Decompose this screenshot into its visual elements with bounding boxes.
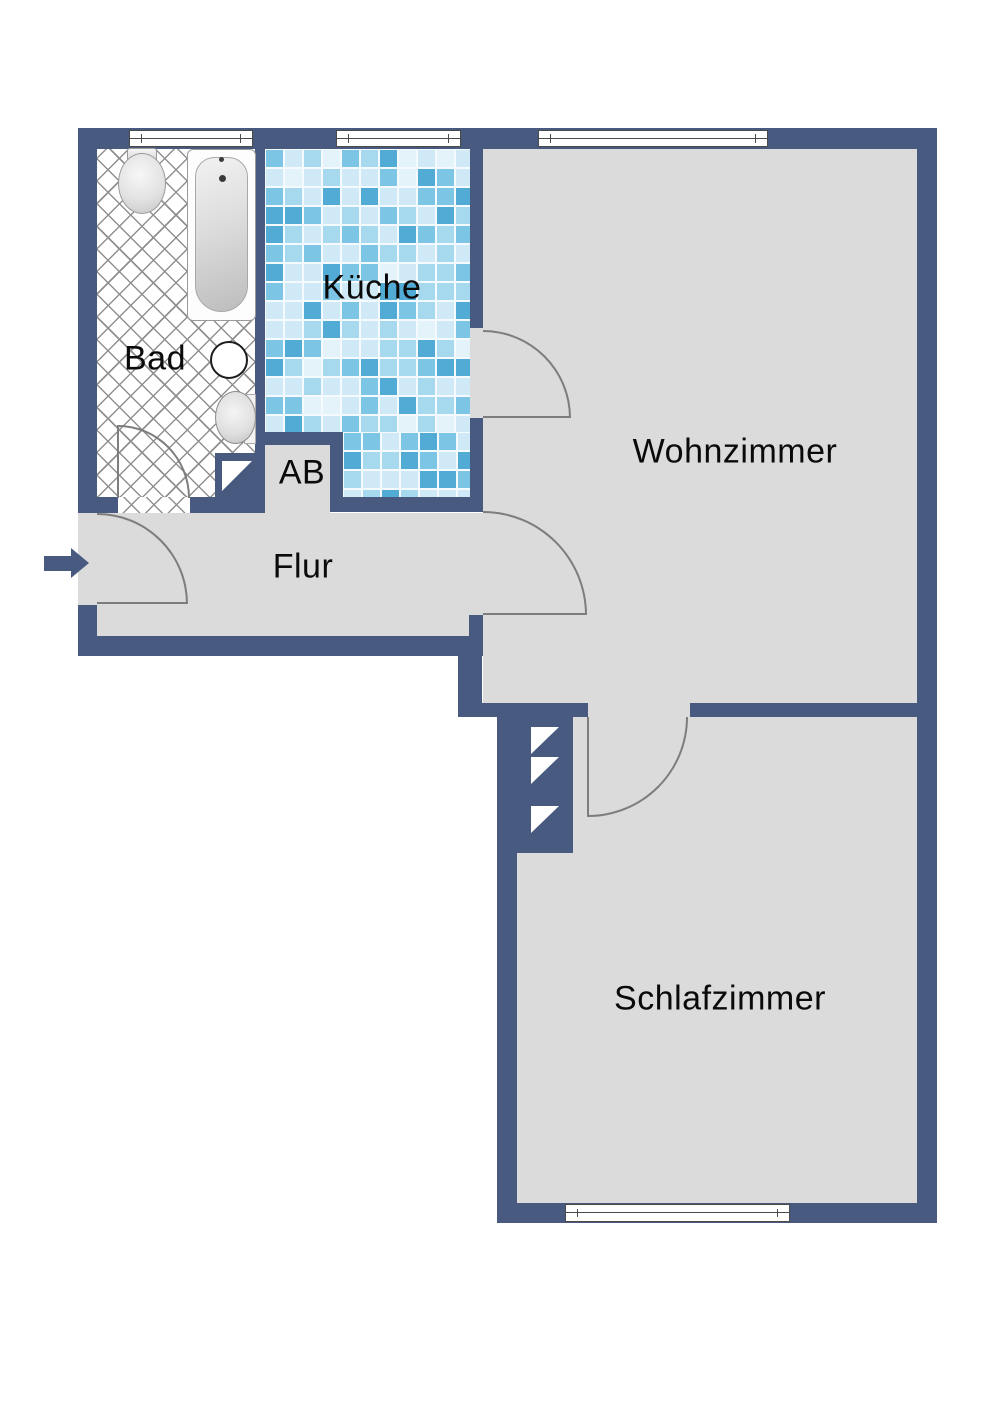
mosaic-tile bbox=[382, 452, 399, 469]
mosaic-tile bbox=[266, 245, 283, 262]
mosaic-tile bbox=[363, 490, 380, 497]
mosaic-tile bbox=[456, 264, 470, 281]
mosaic-tile bbox=[437, 302, 454, 319]
mosaic-tile bbox=[382, 490, 399, 497]
mosaic-tile bbox=[456, 245, 470, 262]
mosaic-tile bbox=[344, 433, 361, 450]
wall-kueche-wohnzimmer-upper bbox=[470, 149, 483, 328]
round-basin-icon bbox=[210, 341, 248, 379]
mosaic-tile bbox=[458, 490, 470, 497]
bad-window bbox=[129, 130, 253, 147]
mosaic-tile bbox=[266, 359, 283, 376]
mosaic-tile bbox=[285, 245, 302, 262]
mosaic-tile bbox=[323, 378, 340, 395]
mosaic-tile bbox=[437, 207, 454, 224]
mosaic-tile bbox=[418, 207, 435, 224]
mosaic-tile bbox=[437, 264, 454, 281]
mosaic-tile bbox=[399, 397, 416, 414]
mosaic-tile bbox=[323, 169, 340, 186]
mosaic-tile bbox=[344, 490, 361, 497]
entrance-arrow-icon bbox=[44, 556, 72, 571]
mosaic-tile bbox=[361, 245, 378, 262]
schlafzimmer-label: Schlafzimmer bbox=[614, 980, 826, 1019]
mosaic-tile bbox=[304, 207, 321, 224]
window-glazing-line bbox=[130, 138, 252, 139]
bad-door-leaf bbox=[117, 425, 119, 498]
mosaic-tile bbox=[456, 226, 470, 243]
bathtub-faucet-icon bbox=[219, 157, 224, 162]
mosaic-tile bbox=[401, 452, 418, 469]
mosaic-tile bbox=[304, 169, 321, 186]
mosaic-tile bbox=[456, 302, 470, 319]
mosaic-tile bbox=[323, 188, 340, 205]
mosaic-tile bbox=[266, 283, 283, 300]
window-glazing-line bbox=[141, 134, 142, 142]
mosaic-tile bbox=[323, 397, 340, 414]
mosaic-tile bbox=[323, 207, 340, 224]
wall-bad-kueche-divider bbox=[255, 149, 265, 453]
wohnzimmer-window bbox=[538, 130, 768, 147]
mosaic-tile bbox=[456, 150, 470, 167]
mosaic-tile bbox=[458, 471, 470, 488]
wall-flur-bottom bbox=[78, 636, 483, 656]
mosaic-tile bbox=[399, 378, 416, 395]
mosaic-tile bbox=[361, 321, 378, 338]
mosaic-tile bbox=[342, 169, 359, 186]
mosaic-tile bbox=[439, 433, 456, 450]
bad-doorway-floor bbox=[118, 497, 190, 513]
mosaic-tile bbox=[323, 416, 340, 432]
mosaic-tile bbox=[266, 226, 283, 243]
mosaic-tile bbox=[361, 397, 378, 414]
ab-label: AB bbox=[279, 454, 325, 493]
entrance-arrow-head-icon bbox=[71, 548, 89, 578]
wall-kueche-wohnzimmer-lower bbox=[470, 418, 483, 512]
mosaic-tile bbox=[285, 169, 302, 186]
window-glazing-line bbox=[240, 134, 241, 142]
mosaic-tile bbox=[437, 359, 454, 376]
mosaic-tile bbox=[456, 359, 470, 376]
ab-duct-symbol-icon bbox=[222, 461, 252, 491]
mosaic-tile bbox=[380, 340, 397, 357]
mosaic-tile bbox=[323, 359, 340, 376]
kueche-window bbox=[336, 130, 461, 147]
mosaic-tile bbox=[361, 207, 378, 224]
mosaic-tile bbox=[342, 340, 359, 357]
mosaic-tile bbox=[344, 452, 361, 469]
mosaic-tile bbox=[363, 471, 380, 488]
mosaic-tile bbox=[380, 321, 397, 338]
mosaic-tile bbox=[285, 283, 302, 300]
mosaic-tile bbox=[399, 321, 416, 338]
mosaic-tile bbox=[399, 340, 416, 357]
wall-flur-east-stub bbox=[469, 615, 483, 637]
mosaic-tile bbox=[437, 169, 454, 186]
wall-right bbox=[917, 128, 937, 1223]
mosaic-tile bbox=[380, 245, 397, 262]
mosaic-tile bbox=[361, 169, 378, 186]
mosaic-tile bbox=[285, 340, 302, 357]
mosaic-tile bbox=[380, 169, 397, 186]
mosaic-tile bbox=[342, 359, 359, 376]
mosaic-tile bbox=[418, 321, 435, 338]
wall-schlafzimmer-left bbox=[497, 717, 517, 1223]
mosaic-tile bbox=[456, 416, 470, 432]
mosaic-tile bbox=[399, 416, 416, 432]
window-glazing-line bbox=[566, 1212, 789, 1213]
wall-bad-bottom-left bbox=[97, 497, 118, 513]
flur-door-leaf bbox=[483, 613, 587, 615]
mosaic-tile bbox=[285, 378, 302, 395]
mosaic-tile bbox=[456, 321, 470, 338]
window-glazing-line bbox=[337, 138, 460, 139]
wohnzimmer-floor bbox=[483, 149, 917, 703]
mosaic-tile bbox=[456, 340, 470, 357]
mosaic-tile bbox=[304, 150, 321, 167]
mosaic-tile bbox=[304, 397, 321, 414]
window-glazing-line bbox=[539, 138, 767, 139]
mosaic-tile bbox=[342, 207, 359, 224]
mosaic-tile bbox=[418, 226, 435, 243]
mosaic-tile bbox=[437, 188, 454, 205]
mosaic-tile bbox=[437, 340, 454, 357]
mosaic-tile bbox=[437, 397, 454, 414]
mosaic-tile bbox=[380, 226, 397, 243]
mosaic-tile bbox=[342, 150, 359, 167]
duct-triangle-icon bbox=[531, 727, 559, 754]
mosaic-tile bbox=[418, 378, 435, 395]
mosaic-tile bbox=[437, 283, 454, 300]
mosaic-tile bbox=[285, 302, 302, 319]
mosaic-tile bbox=[285, 416, 302, 432]
mosaic-tile bbox=[304, 359, 321, 376]
mosaic-tile bbox=[304, 264, 321, 281]
mosaic-tile bbox=[420, 490, 437, 497]
wall-ab-right bbox=[330, 445, 343, 512]
mosaic-tile bbox=[342, 188, 359, 205]
mosaic-tile bbox=[380, 207, 397, 224]
mosaic-tile bbox=[266, 321, 283, 338]
mosaic-tile bbox=[363, 452, 380, 469]
mosaic-tile bbox=[361, 226, 378, 243]
mosaic-tile bbox=[342, 321, 359, 338]
mosaic-tile bbox=[382, 433, 399, 450]
mosaic-tile bbox=[266, 378, 283, 395]
mosaic-tile bbox=[342, 397, 359, 414]
mosaic-tile bbox=[285, 150, 302, 167]
mosaic-tile bbox=[361, 378, 378, 395]
mosaic-tile bbox=[266, 416, 283, 432]
window-glazing-line bbox=[777, 1209, 778, 1218]
mosaic-tile bbox=[266, 150, 283, 167]
mosaic-tile bbox=[342, 378, 359, 395]
mosaic-tile bbox=[399, 188, 416, 205]
window-glazing-line bbox=[348, 134, 349, 142]
kueche-doorway-floor bbox=[470, 328, 483, 418]
mosaic-tile bbox=[342, 245, 359, 262]
mosaic-tile bbox=[439, 452, 456, 469]
mosaic-tile bbox=[420, 433, 437, 450]
mosaic-tile bbox=[456, 188, 470, 205]
schlafzimmer-window bbox=[565, 1204, 790, 1222]
mosaic-tile bbox=[304, 283, 321, 300]
mosaic-tile bbox=[342, 416, 359, 432]
wohnzimmer-label: Wohnzimmer bbox=[633, 433, 838, 472]
schlafzimmer-doorway-floor bbox=[588, 703, 690, 717]
mosaic-tile bbox=[399, 207, 416, 224]
mosaic-tile bbox=[344, 471, 361, 488]
wall-left-upper bbox=[78, 128, 97, 513]
mosaic-tile bbox=[418, 245, 435, 262]
mosaic-tile bbox=[266, 169, 283, 186]
mosaic-tile bbox=[401, 490, 418, 497]
window-glazing-line bbox=[448, 134, 449, 142]
mosaic-tile bbox=[399, 169, 416, 186]
mosaic-tile bbox=[285, 207, 302, 224]
mosaic-tile bbox=[418, 416, 435, 432]
washbasin-icon bbox=[215, 391, 256, 444]
duct-triangle-icon bbox=[531, 806, 559, 833]
mosaic-tile bbox=[439, 490, 456, 497]
entrance-door-leaf bbox=[97, 602, 188, 604]
duct-triangle-icon bbox=[531, 757, 559, 784]
mosaic-tile bbox=[304, 321, 321, 338]
mosaic-tile bbox=[437, 416, 454, 432]
window-glazing-line bbox=[550, 134, 551, 142]
mosaic-tile bbox=[456, 207, 470, 224]
mosaic-tile bbox=[304, 416, 321, 432]
mosaic-tile bbox=[420, 452, 437, 469]
mosaic-tile bbox=[380, 188, 397, 205]
mosaic-tile bbox=[266, 207, 283, 224]
mosaic-tile bbox=[285, 397, 302, 414]
mosaic-tile bbox=[342, 226, 359, 243]
wall-wohn-schlaf-right bbox=[690, 703, 917, 717]
mosaic-tile bbox=[458, 452, 470, 469]
mosaic-tile bbox=[437, 245, 454, 262]
mosaic-tile bbox=[380, 359, 397, 376]
mosaic-tile bbox=[304, 245, 321, 262]
mosaic-tile bbox=[437, 226, 454, 243]
mosaic-tile bbox=[399, 359, 416, 376]
mosaic-tile bbox=[323, 321, 340, 338]
mosaic-tile bbox=[323, 340, 340, 357]
mosaic-tile bbox=[456, 378, 470, 395]
mosaic-tile bbox=[266, 340, 283, 357]
wall-kueche-bottom-left bbox=[255, 432, 343, 445]
mosaic-tile bbox=[304, 226, 321, 243]
mosaic-tile bbox=[285, 188, 302, 205]
window-glazing-line bbox=[577, 1209, 578, 1218]
mosaic-tile bbox=[361, 188, 378, 205]
floor-plan: Bad Küche AB Flur Wohnzimmer Schlafzimme… bbox=[0, 0, 1000, 1415]
mosaic-tile bbox=[420, 471, 437, 488]
mosaic-tile bbox=[439, 471, 456, 488]
mosaic-tile bbox=[418, 150, 435, 167]
mosaic-tile bbox=[363, 433, 380, 450]
bathtub-drain-icon bbox=[219, 175, 226, 182]
mosaic-tile bbox=[361, 359, 378, 376]
mosaic-tile bbox=[361, 340, 378, 357]
mosaic-tile bbox=[456, 397, 470, 414]
mosaic-tile bbox=[418, 397, 435, 414]
mosaic-tile bbox=[266, 264, 283, 281]
schlafzimmer-floor bbox=[517, 717, 917, 1203]
mosaic-tile bbox=[323, 226, 340, 243]
mosaic-tile bbox=[382, 471, 399, 488]
kueche-label: Küche bbox=[323, 269, 422, 308]
mosaic-tile bbox=[380, 378, 397, 395]
mosaic-tile bbox=[380, 150, 397, 167]
mosaic-tile bbox=[418, 169, 435, 186]
mosaic-tile bbox=[361, 150, 378, 167]
mosaic-tile bbox=[456, 169, 470, 186]
mosaic-tile bbox=[323, 245, 340, 262]
wall-below-flur bbox=[458, 656, 482, 703]
mosaic-tile bbox=[437, 150, 454, 167]
wall-kueche-bottom-right bbox=[343, 497, 483, 512]
mosaic-tile bbox=[418, 188, 435, 205]
mosaic-tile bbox=[380, 416, 397, 432]
mosaic-tile bbox=[323, 150, 340, 167]
mosaic-tile bbox=[285, 359, 302, 376]
window-glazing-line bbox=[755, 134, 756, 142]
mosaic-tile bbox=[380, 397, 397, 414]
flur-label: Flur bbox=[273, 548, 334, 587]
mosaic-tile bbox=[285, 226, 302, 243]
mosaic-tile bbox=[418, 340, 435, 357]
mosaic-tile bbox=[456, 283, 470, 300]
mosaic-tile bbox=[285, 321, 302, 338]
mosaic-tile bbox=[304, 340, 321, 357]
mosaic-tile bbox=[266, 302, 283, 319]
mosaic-tile bbox=[266, 188, 283, 205]
wall-wohn-schlaf-left bbox=[458, 703, 588, 717]
mosaic-tile bbox=[401, 433, 418, 450]
mosaic-tile bbox=[437, 321, 454, 338]
bad-label: Bad bbox=[124, 340, 186, 379]
mosaic-tile bbox=[304, 302, 321, 319]
mosaic-tile bbox=[418, 359, 435, 376]
mosaic-tile bbox=[304, 188, 321, 205]
mosaic-tile bbox=[266, 397, 283, 414]
toilet-bowl-icon bbox=[118, 153, 166, 214]
mosaic-tile bbox=[399, 245, 416, 262]
kueche-door-leaf bbox=[483, 416, 571, 418]
mosaic-tile bbox=[361, 416, 378, 432]
mosaic-tile bbox=[399, 150, 416, 167]
kueche-floor-lower bbox=[343, 432, 470, 497]
mosaic-tile bbox=[399, 226, 416, 243]
schlafzimmer-door-leaf bbox=[587, 717, 589, 817]
mosaic-tile bbox=[285, 264, 302, 281]
mosaic-tile bbox=[401, 471, 418, 488]
mosaic-tile bbox=[458, 433, 470, 450]
mosaic-tile bbox=[437, 378, 454, 395]
mosaic-tile bbox=[304, 378, 321, 395]
